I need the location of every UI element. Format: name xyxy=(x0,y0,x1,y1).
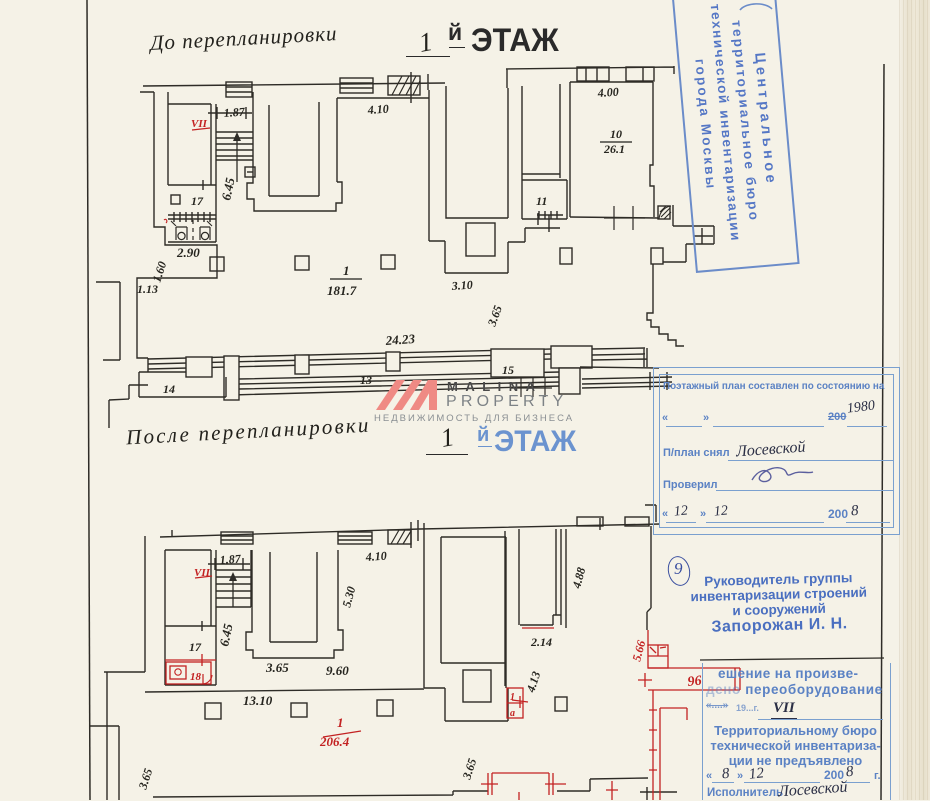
svg-text:13: 13 xyxy=(360,373,372,387)
svg-text:3.65: 3.65 xyxy=(135,767,155,792)
svg-text:13.10: 13.10 xyxy=(243,693,273,708)
svg-text:26.1: 26.1 xyxy=(603,142,625,156)
svg-text:4.10: 4.10 xyxy=(366,102,389,118)
svg-text:17: 17 xyxy=(191,194,204,208)
svg-text:3.65: 3.65 xyxy=(265,660,289,675)
svg-text:5.66: 5.66 xyxy=(629,639,648,663)
svg-text:181.7: 181.7 xyxy=(327,283,357,298)
svg-text:11: 11 xyxy=(536,194,547,208)
svg-text:1.60: 1.60 xyxy=(150,260,170,284)
svg-text:1.87: 1.87 xyxy=(223,104,246,120)
svg-text:VII: VII xyxy=(191,118,208,130)
svg-text:VII: VII xyxy=(194,567,211,579)
svg-text:1: 1 xyxy=(510,692,515,703)
svg-text:2.90: 2.90 xyxy=(176,245,200,260)
svg-text:1: 1 xyxy=(343,263,350,278)
svg-text:1: 1 xyxy=(337,715,344,730)
svg-text:9.60: 9.60 xyxy=(326,663,349,678)
svg-text:18: 18 xyxy=(190,671,202,683)
svg-text:1.13: 1.13 xyxy=(137,282,158,296)
svg-text:5.30: 5.30 xyxy=(339,585,358,609)
svg-text:4.88: 4.88 xyxy=(569,566,588,591)
svg-text:96: 96 xyxy=(687,674,702,690)
svg-text:3.10: 3.10 xyxy=(450,278,473,294)
svg-text:206.4: 206.4 xyxy=(319,734,350,749)
svg-text:15: 15 xyxy=(502,363,514,377)
svg-text:4.13: 4.13 xyxy=(523,670,543,695)
svg-text:6.45: 6.45 xyxy=(216,622,236,648)
svg-text:a: a xyxy=(510,708,515,719)
svg-text:24.23: 24.23 xyxy=(384,331,416,348)
svg-text:3.65: 3.65 xyxy=(484,304,505,329)
svg-text:14: 14 xyxy=(163,382,175,396)
svg-text:10: 10 xyxy=(610,127,622,141)
svg-text:3.65: 3.65 xyxy=(459,757,479,782)
svg-text:2.14: 2.14 xyxy=(530,635,552,649)
svg-text:6.45: 6.45 xyxy=(218,176,238,202)
svg-text:1.87: 1.87 xyxy=(219,551,242,567)
svg-text:4.10: 4.10 xyxy=(364,549,387,565)
svg-text:4.00: 4.00 xyxy=(596,85,619,101)
svg-text:17: 17 xyxy=(189,640,202,654)
